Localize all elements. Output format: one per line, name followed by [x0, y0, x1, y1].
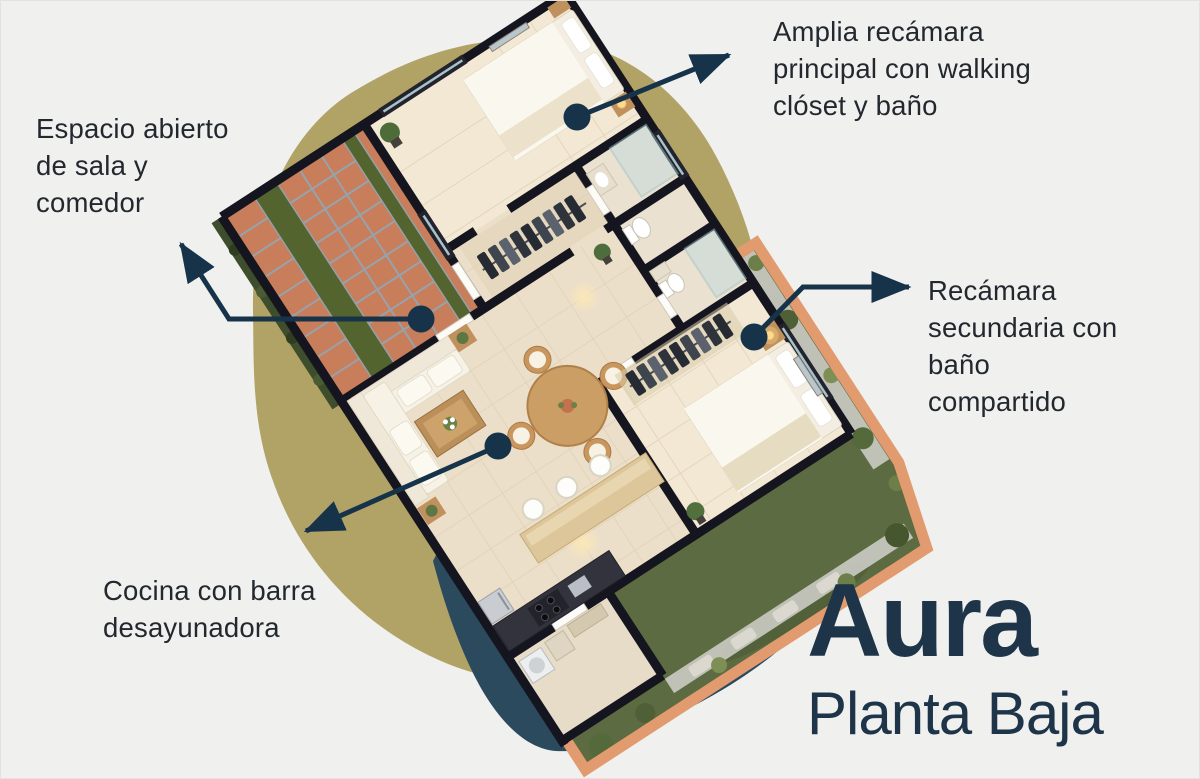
infographic-canvas: Amplia recámara principal con walking cl…	[0, 0, 1200, 779]
annotation-master-bedroom: Amplia recámara principal con walking cl…	[773, 13, 1103, 124]
dot-secondary-bedroom	[741, 324, 768, 351]
floor-subtitle: Planta Baja	[807, 681, 1103, 747]
project-title: Aura	[807, 567, 1103, 675]
brand-block: Aura Planta Baja	[807, 567, 1103, 747]
dot-kitchen	[485, 433, 512, 460]
dot-living-dining	[408, 306, 435, 333]
annotation-living-dining: Espacio abierto de sala y comedor	[36, 110, 296, 221]
annotation-kitchen: Cocina con barra desayunadora	[103, 572, 413, 646]
dot-master-bedroom	[564, 104, 591, 131]
annotation-secondary-bedroom: Recámara secundaria con baño compartido	[928, 272, 1158, 420]
